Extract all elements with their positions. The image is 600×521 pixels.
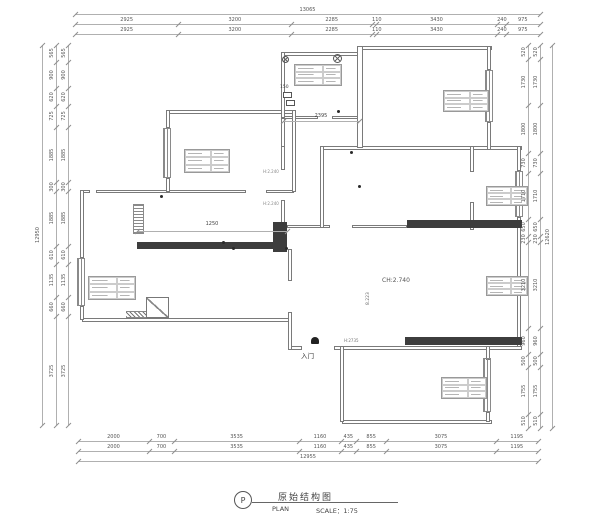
dimension-value: 1710 (521, 189, 527, 202)
dimension-value: 1195 (496, 434, 538, 440)
dimension-tick (526, 426, 532, 432)
dimension-value: 2000 (78, 444, 149, 450)
wall-segment (486, 412, 490, 422)
dimension-line (42, 45, 43, 425)
kitchen-dimension-label: 2395 (283, 113, 359, 119)
wall-segment (288, 312, 292, 350)
fixture-dot (160, 195, 163, 198)
dimension-value: 240 (497, 17, 505, 23)
dimension-value: 2000 (78, 434, 149, 440)
fixture-dot (358, 185, 361, 188)
fixture-dot (232, 247, 235, 250)
dimension-value: 700 (149, 434, 174, 440)
dimension-value: 1755 (521, 384, 527, 397)
wall-segment (283, 52, 359, 56)
floor-plan-canvas: 1306529253200228511034302409752925320022… (0, 0, 600, 521)
ceiling-height-label: CH:2.740 (382, 277, 410, 284)
dimension-value: 3075 (386, 444, 495, 450)
dimension-value: 435 (341, 434, 356, 440)
dimension-value: 510 (533, 416, 539, 426)
dimension-value: 2925 (75, 27, 178, 33)
wall-segment (320, 146, 324, 228)
dimension-value: 3210 (533, 279, 539, 292)
dimension-tick (550, 426, 556, 432)
dimension-value: 1885 (49, 212, 55, 225)
dimension-value: 565 (61, 48, 67, 58)
dimension-value: 725 (61, 112, 67, 122)
dimension-value: 1885 (61, 212, 67, 225)
dimension-value: 700 (149, 444, 174, 450)
dimension-value: 2925 (75, 17, 178, 23)
dimension-value: 660 (61, 302, 67, 312)
dimension-value: 730 (533, 158, 539, 168)
fixture-dot (350, 151, 353, 154)
dimension-value: 2285 (291, 17, 372, 23)
bath-dimension-label: 1250 (137, 221, 287, 227)
fixture-dot (222, 241, 225, 244)
wall-tag-label: H:2.240 (263, 169, 279, 174)
room-info-table (441, 377, 487, 399)
dimension-value: 3075 (386, 434, 495, 440)
dimension-value: 1885 (61, 148, 67, 161)
dimension-value: 975 (506, 17, 540, 23)
wall-segment (487, 46, 491, 70)
structural-wall (405, 337, 522, 345)
dimension-value: 1135 (49, 274, 55, 287)
dimension-line (137, 231, 287, 232)
dimension-value: 1160 (299, 434, 340, 440)
wall-segment (340, 346, 344, 422)
room-info-table (443, 90, 489, 112)
dimension-line (56, 45, 57, 425)
dimension-value: 3210 (521, 279, 527, 292)
fixture-dot (285, 247, 288, 250)
flue-symbol (282, 56, 289, 63)
dimension-value: 300 (61, 182, 67, 192)
wall-segment (288, 249, 292, 281)
dimension-value: 900 (49, 70, 55, 80)
wall-segment (168, 110, 294, 114)
dimension-value: 500 (533, 356, 539, 366)
dimension-value: 520 (533, 47, 539, 57)
meter-size-label: 150 (280, 85, 289, 90)
dimension-value: 1730 (533, 76, 539, 89)
dimension-value: 960 (521, 336, 527, 346)
wall-segment (80, 190, 84, 258)
dimension-value: 12950 (35, 227, 41, 243)
window-symbol (77, 258, 85, 306)
plan-symbol-badge: P (234, 491, 252, 509)
dimension-value: 510 (521, 416, 527, 426)
dimension-value: 240 (497, 27, 505, 33)
dimension-value: 855 (356, 444, 386, 450)
dimension-line (552, 45, 553, 428)
dimension-value: 565 (49, 48, 55, 58)
dimension-value: 1730 (521, 76, 527, 89)
dimension-value: 855 (356, 434, 386, 440)
dimension-tick (66, 423, 72, 429)
dimension-value: 1135 (61, 274, 67, 287)
dimension-value: 620 (61, 92, 67, 102)
wall-segment (166, 178, 170, 192)
room-info-table (184, 149, 230, 173)
wall-tag-label: H:2.240 (263, 201, 279, 206)
dimension-value: 300 (49, 182, 55, 192)
plan-label: PLAN (272, 505, 289, 513)
wall-segment (266, 190, 294, 193)
dimension-value: 13065 (75, 7, 540, 13)
wall-segment (487, 122, 491, 150)
plan-title: 原始结构图 (278, 490, 333, 503)
room-info-table (294, 64, 342, 86)
wall-segment (166, 110, 170, 128)
dimension-value: 620 (49, 92, 55, 102)
dimension-value: 610 (61, 250, 67, 260)
meter-symbol (286, 100, 295, 106)
shower-tray (146, 297, 169, 318)
dimension-value: 3535 (174, 444, 300, 450)
dimension-value: 730 (521, 158, 527, 168)
wall-segment (334, 346, 522, 350)
dimension-value: 3200 (178, 17, 291, 23)
dimension-value: 660 (49, 302, 55, 312)
dimension-value: 1885 (49, 148, 55, 161)
dimension-tick (54, 423, 60, 429)
dimension-line (75, 34, 540, 35)
wall-segment (357, 46, 363, 148)
dimension-value: 1710 (533, 189, 539, 202)
wall-height-label: H:2735 (344, 338, 359, 343)
wall-segment (342, 420, 492, 424)
dimension-value: 3430 (376, 27, 497, 33)
dimension-value: 1195 (496, 444, 538, 450)
dimension-line (68, 45, 69, 425)
dimension-value: 12620 (545, 229, 551, 245)
dimension-value: 3430 (376, 17, 497, 23)
entrance-icon (311, 337, 319, 344)
dimension-line (75, 24, 540, 25)
window-symbol (163, 128, 171, 178)
dimension-value: 1160 (299, 444, 340, 450)
dimension-value: 1755 (533, 384, 539, 397)
dimension-line (78, 461, 538, 462)
dimension-tick (538, 426, 544, 432)
dimension-value: 3200 (178, 27, 291, 33)
entrance-label: 入门 (301, 350, 314, 360)
dimension-value: 650 (533, 223, 539, 233)
flue-symbol (333, 54, 342, 63)
wall-segment (82, 318, 290, 322)
scale-label: SCALE：1:75 (316, 505, 358, 515)
dimension-tick (40, 423, 46, 429)
dimension-value: 610 (49, 250, 55, 260)
room-info-table (88, 276, 136, 300)
threshold-hatch (126, 311, 146, 318)
dimension-value: 12955 (78, 454, 538, 460)
wall-segment (358, 46, 492, 50)
dimension-value: 3535 (174, 434, 300, 440)
dimension-value: 650 (521, 223, 527, 233)
dimension-value: 960 (533, 336, 539, 346)
wall-segment (322, 146, 522, 150)
area-mark-label: 8.223 (366, 292, 371, 305)
dimension-value: 725 (49, 112, 55, 122)
dimension-value: 500 (521, 356, 527, 366)
dimension-value: 1800 (521, 123, 527, 136)
dimension-value: 3725 (61, 364, 67, 377)
structural-wall (137, 242, 283, 249)
wall-segment (80, 306, 84, 320)
wall-segment (352, 225, 407, 228)
dimension-value: 3725 (49, 364, 55, 377)
meter-symbol (283, 92, 292, 98)
dimension-line (75, 14, 540, 15)
dimension-value: 975 (506, 27, 540, 33)
wall-segment (292, 110, 296, 192)
dimension-value: 435 (341, 444, 356, 450)
structural-wall (407, 220, 522, 228)
dimension-value: 900 (61, 70, 67, 80)
dimension-value: 2285 (291, 27, 372, 33)
dimension-value: 1800 (533, 123, 539, 136)
dimension-value: 520 (521, 47, 527, 57)
wall-segment (281, 146, 285, 170)
wall-segment (96, 190, 246, 193)
dimension-line (283, 121, 359, 122)
wall-segment (470, 146, 474, 172)
